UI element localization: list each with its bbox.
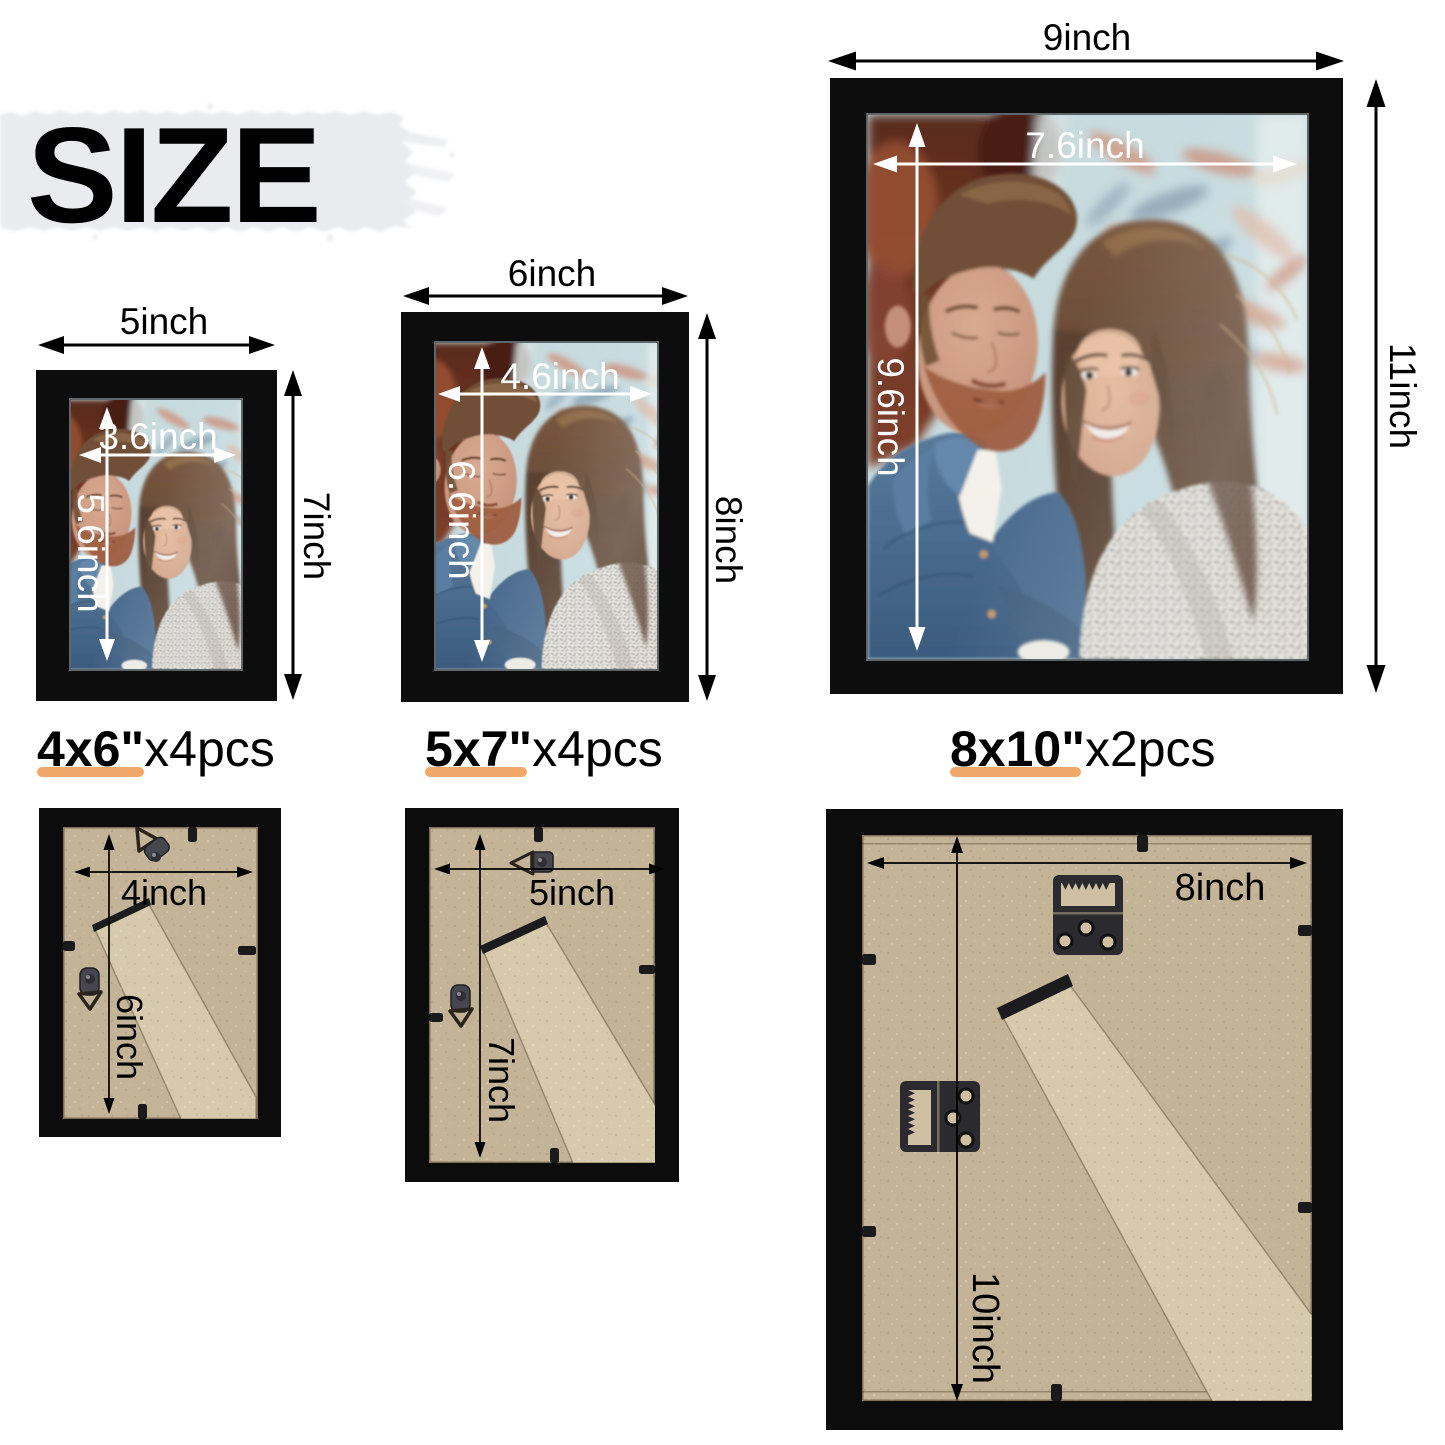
- svg-text:6inch: 6inch: [508, 253, 596, 294]
- svg-text:5inch: 5inch: [120, 301, 208, 342]
- svg-text:4x6"x4pcs: 4x6"x4pcs: [37, 721, 275, 777]
- svg-text:4.6inch: 4.6inch: [500, 356, 619, 397]
- svg-text:4inch: 4inch: [121, 872, 207, 913]
- svg-text:6.6inch: 6.6inch: [441, 460, 482, 579]
- svg-text:7inch: 7inch: [481, 1037, 522, 1123]
- svg-text:SIZE: SIZE: [27, 99, 319, 251]
- svg-text:9inch: 9inch: [1043, 17, 1131, 58]
- svg-text:7inch: 7inch: [296, 492, 337, 580]
- svg-text:7.6inch: 7.6inch: [1025, 125, 1144, 166]
- svg-text:9.6inch: 9.6inch: [870, 357, 911, 476]
- svg-text:10inch: 10inch: [964, 1272, 1006, 1384]
- svg-text:5inch: 5inch: [529, 872, 615, 913]
- svg-text:8inch: 8inch: [1175, 867, 1266, 909]
- svg-text:8inch: 8inch: [708, 496, 749, 584]
- svg-text:5x7"x4pcs: 5x7"x4pcs: [425, 721, 663, 777]
- svg-text:5.6inch: 5.6inch: [70, 493, 111, 612]
- svg-text:6inch: 6inch: [109, 994, 150, 1080]
- svg-text:3.6inch: 3.6inch: [98, 416, 217, 457]
- svg-text:11inch: 11inch: [1382, 343, 1423, 449]
- svg-text:8x10"x2pcs: 8x10"x2pcs: [950, 721, 1216, 777]
